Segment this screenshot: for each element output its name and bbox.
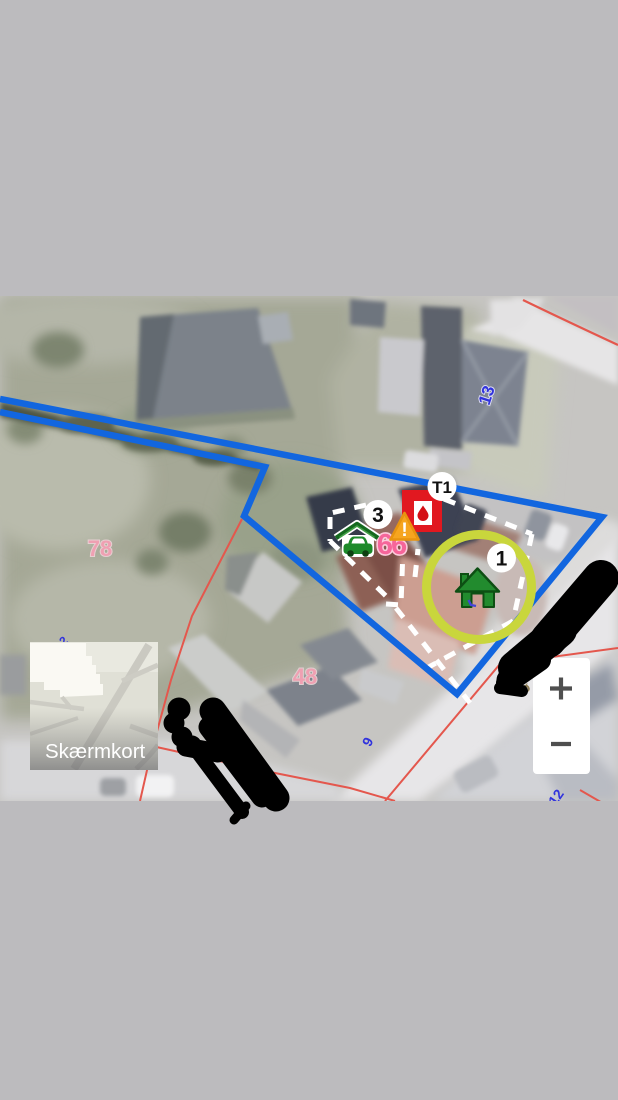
svg-text:1: 1 [496,548,508,571]
svg-text:48: 48 [293,664,317,689]
svg-text:!: ! [401,520,407,541]
svg-text:3: 3 [372,504,384,527]
svg-text:T1: T1 [432,478,452,497]
svg-text:78: 78 [88,536,112,561]
svg-text:Skærmkort: Skærmkort [45,740,146,763]
